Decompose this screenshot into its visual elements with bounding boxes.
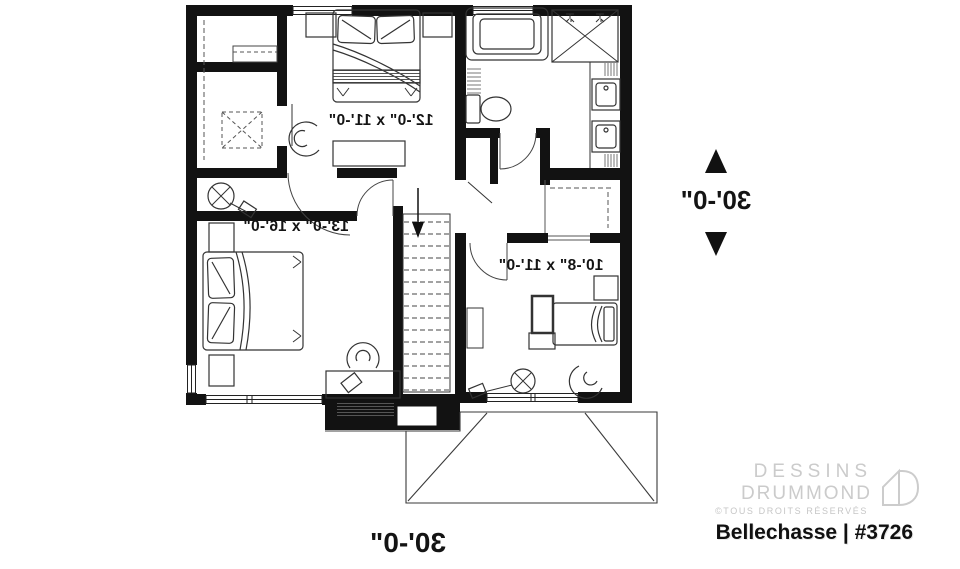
toilet-icon xyxy=(466,95,511,123)
stairs-down-arrow-icon xyxy=(412,188,424,238)
brand-name-line2: DRUMMOND xyxy=(741,483,872,505)
dresser-icon xyxy=(532,296,553,333)
built-in-icon xyxy=(467,308,483,348)
bench-icon xyxy=(529,333,555,349)
door-arc xyxy=(357,180,393,216)
window xyxy=(186,365,197,393)
plan-title: Bellechasse | #3726 xyxy=(716,521,913,545)
nightstand-icon xyxy=(594,276,618,300)
attic-access-icon xyxy=(222,112,262,148)
sink-icon xyxy=(592,79,620,110)
desk-icon xyxy=(326,371,400,398)
dresser-icon xyxy=(333,141,405,166)
nightstand-icon xyxy=(423,13,452,37)
door-arc xyxy=(500,133,536,169)
window xyxy=(487,392,578,403)
closet-rod xyxy=(545,180,612,240)
bedroom-1-furniture xyxy=(289,10,452,166)
bed-icon xyxy=(333,10,420,102)
bed-icon xyxy=(553,303,617,345)
bedroom1-dimension-label: 12'-0" x 11'-0" xyxy=(316,112,446,130)
chair-icon xyxy=(347,343,379,368)
stairs xyxy=(403,188,450,392)
linen-closet xyxy=(468,182,492,203)
arrow-down-icon xyxy=(705,232,727,256)
overall-width-label: 30'-0" xyxy=(338,527,478,559)
copyright-notice: ©TOUS DROITS RÉSERVÉS xyxy=(715,506,868,516)
arrow-up-icon xyxy=(705,149,727,173)
bedroom2-dimension-label: 10'-8" x 11'-0" xyxy=(486,257,616,275)
bedroom-2-furniture xyxy=(467,180,618,398)
chair-icon xyxy=(289,122,319,156)
master-bedroom-dimension-label: 13'-0" x 16'-0" xyxy=(231,218,361,236)
nightstand-icon xyxy=(306,13,336,37)
window xyxy=(206,394,322,405)
shower-icon xyxy=(552,10,618,62)
linen-hatch xyxy=(467,69,481,93)
brand-name-line1: DESSINS xyxy=(754,461,872,483)
drummond-logo-icon xyxy=(869,461,921,509)
overall-depth-label: 30'-0" xyxy=(646,185,786,216)
bed-icon xyxy=(203,252,303,350)
floor-plan-page: 12'-0" x 11'-0" 13'-0" x 16'-0" 10'-8" x… xyxy=(0,0,960,569)
nightstand-icon xyxy=(209,355,234,386)
sink-icon xyxy=(592,121,620,152)
